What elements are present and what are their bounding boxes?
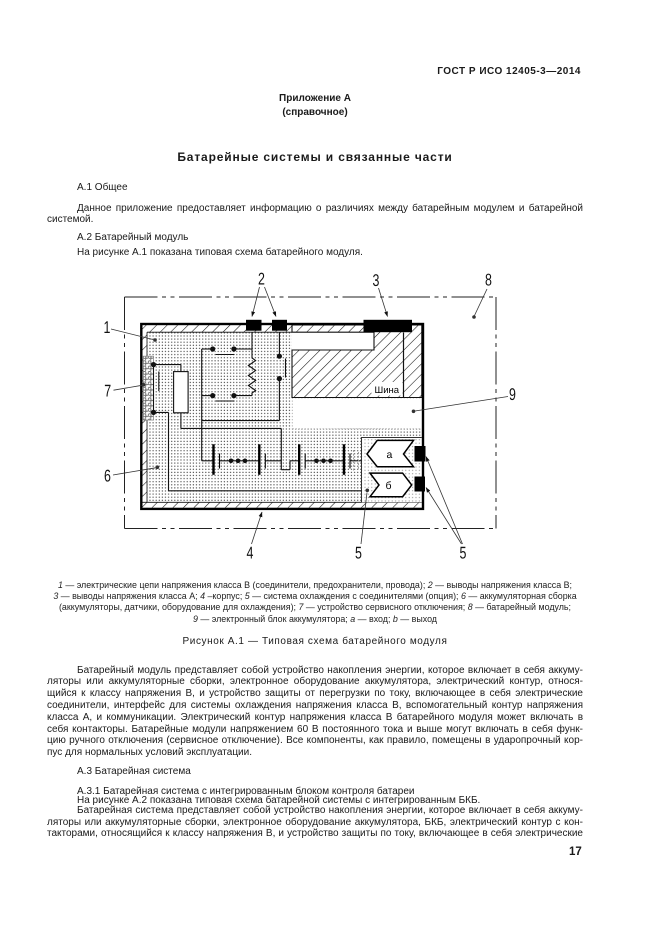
svg-text:Шина: Шина <box>375 385 400 396</box>
svg-text:2: 2 <box>258 270 265 289</box>
svg-text:б: б <box>386 480 392 492</box>
svg-text:5: 5 <box>355 544 362 563</box>
svg-text:4: 4 <box>247 544 254 563</box>
svg-text:5: 5 <box>460 544 467 563</box>
svg-text:а: а <box>387 449 393 461</box>
svg-text:7: 7 <box>104 381 111 400</box>
svg-text:1: 1 <box>104 318 111 337</box>
svg-text:9: 9 <box>509 385 516 404</box>
svg-text:8: 8 <box>485 270 492 289</box>
svg-text:3: 3 <box>373 271 380 290</box>
svg-text:6: 6 <box>104 467 111 486</box>
